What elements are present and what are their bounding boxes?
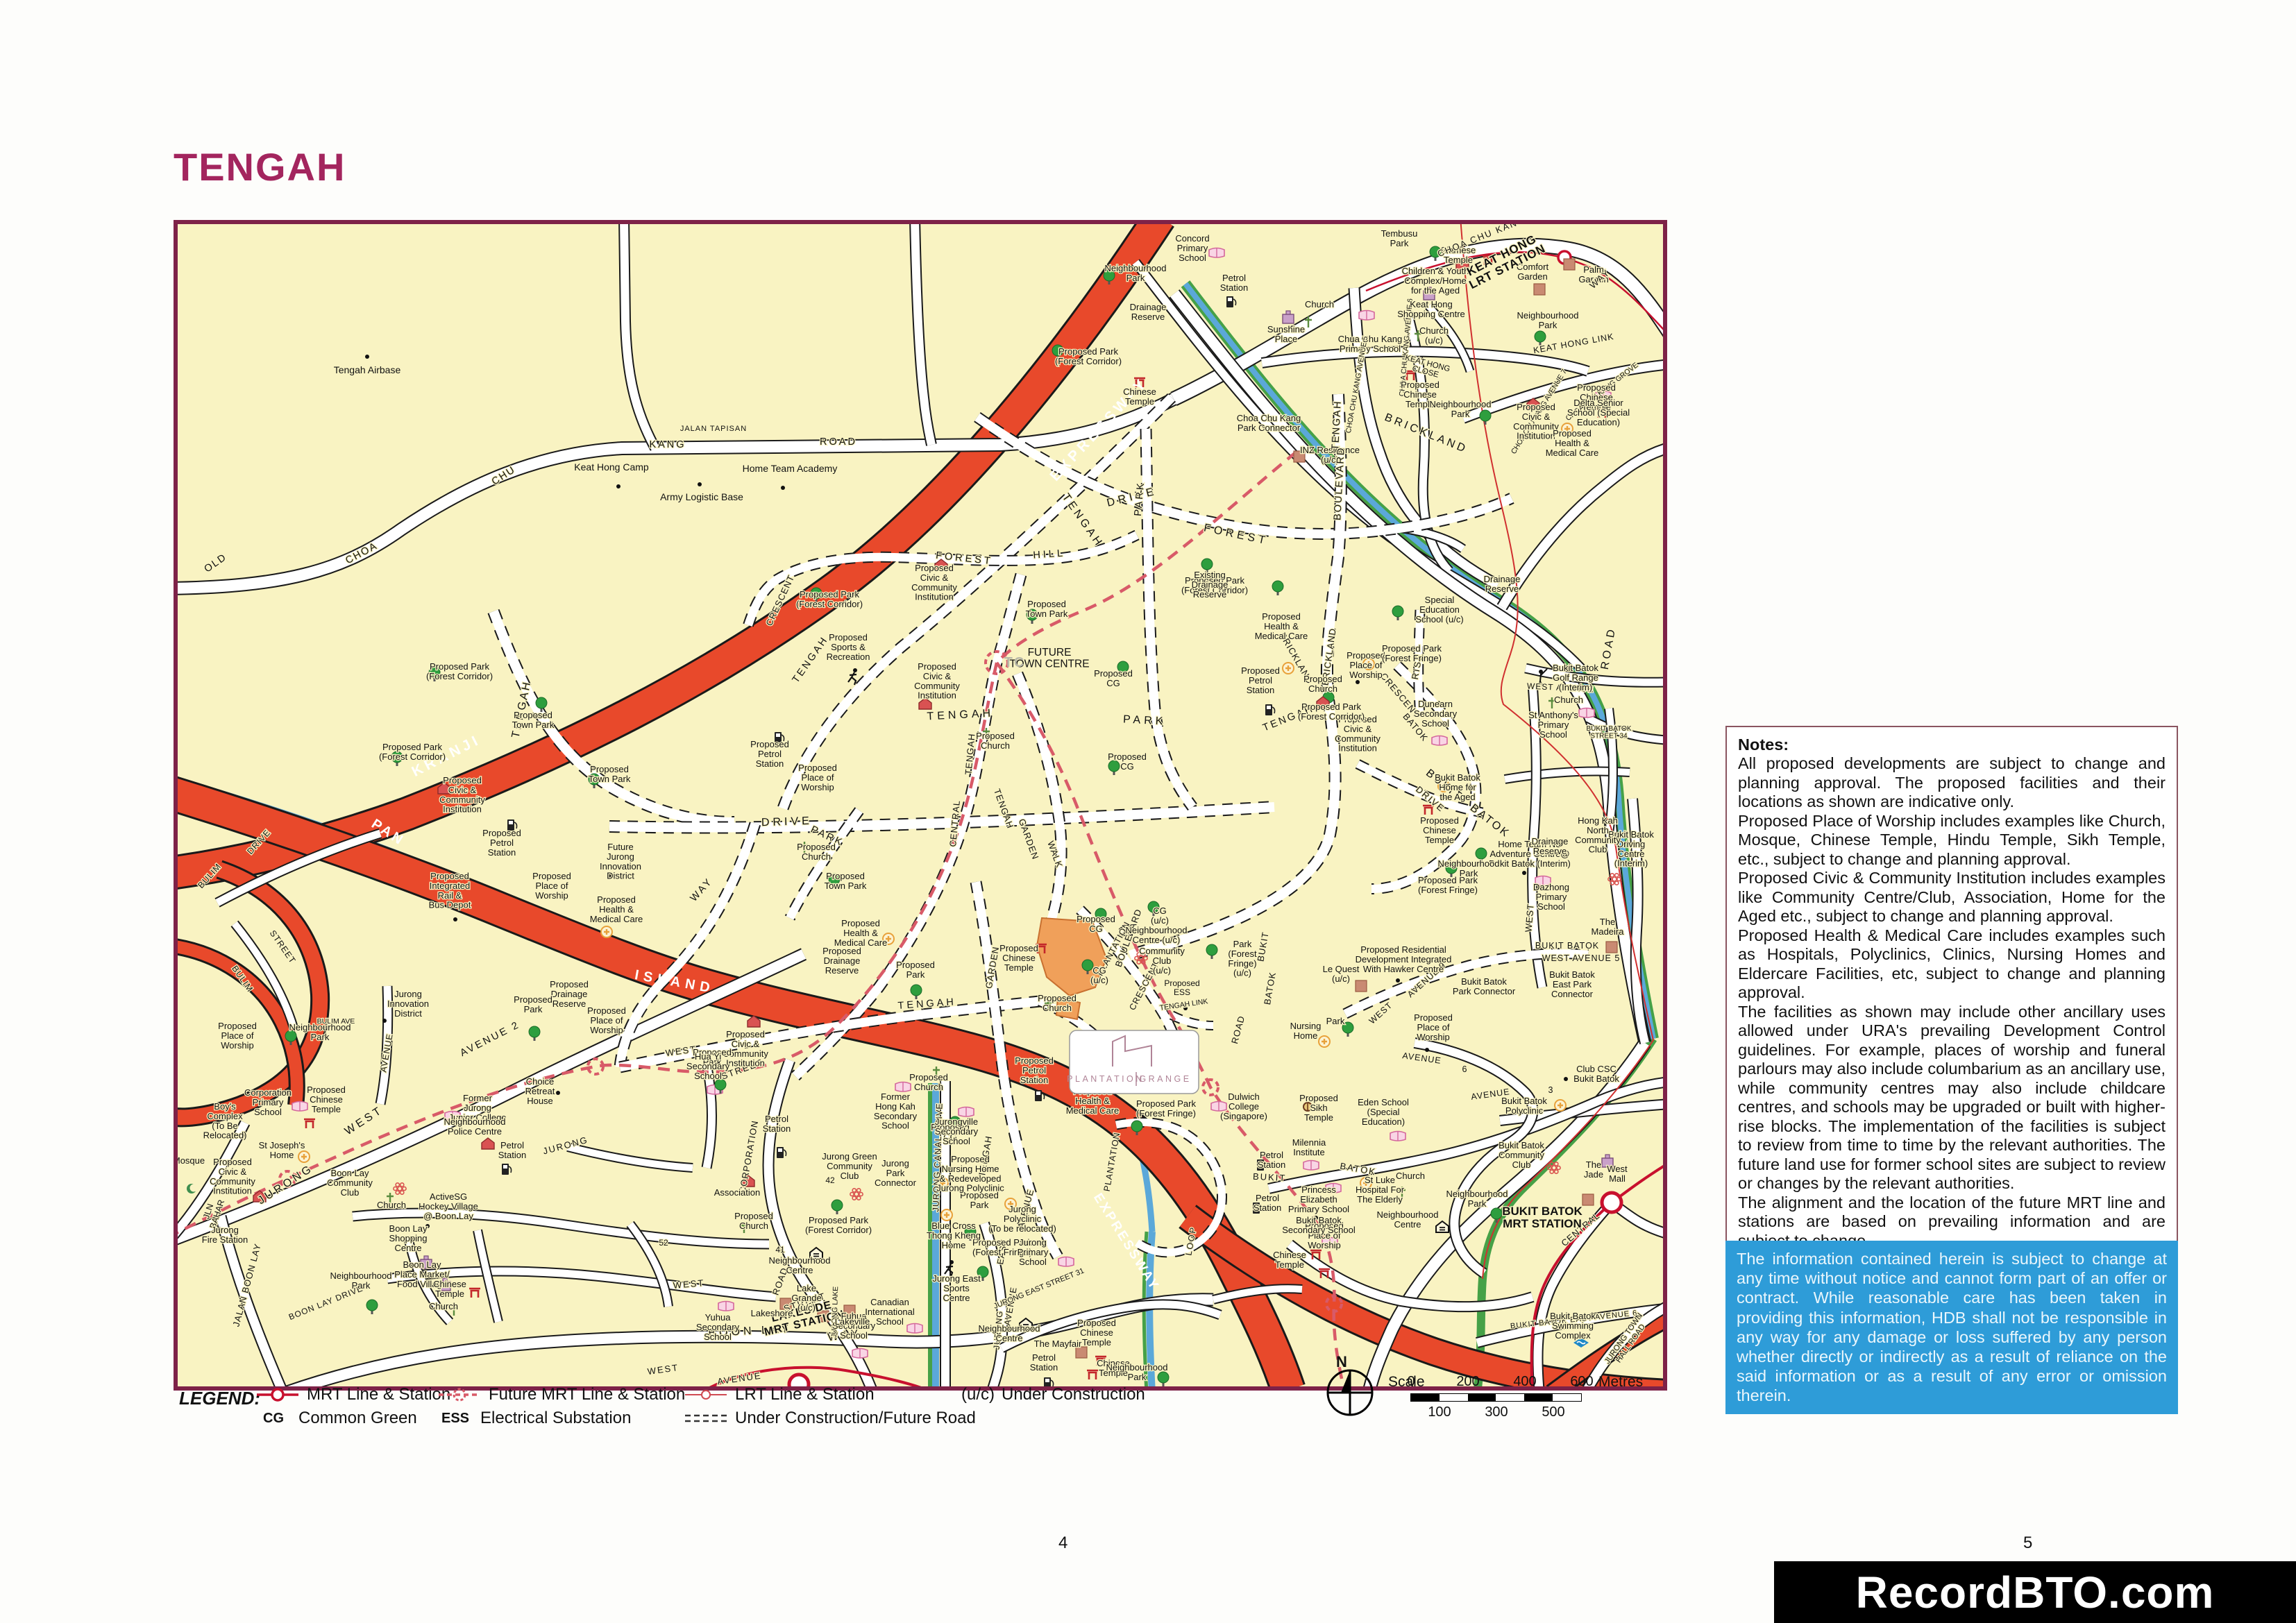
map-label: Lakeville [835, 1316, 870, 1327]
map-label: Church [1396, 1171, 1425, 1181]
scale-tick: 0 [1407, 1374, 1415, 1390]
page-number-right: 5 [2023, 1533, 2032, 1553]
legend-fmrt: Future MRT Line & Station [437, 1385, 685, 1404]
map-label: ProposedChurch [1303, 674, 1342, 694]
map-label: NursingHome [1290, 1021, 1322, 1041]
map-label: ProposedCivic &CommunityInstitution [439, 775, 485, 815]
map-label: ProposedChineseTemple [999, 943, 1038, 973]
map-label: Choa Chu KangPark Connector [1237, 413, 1301, 433]
map-label: Bukit BatokEast ParkConnector [1549, 969, 1595, 999]
tree-icon [366, 1300, 378, 1311]
map-label: ProposedDrainageReserve [822, 946, 861, 976]
map-label: Association [714, 1187, 760, 1198]
map-label: Proposed Park(Forest Corridor) [1298, 702, 1365, 722]
poi-dot [382, 1019, 387, 1023]
map-label: NeighbourhoodPolice Centre [444, 1116, 506, 1137]
map-label: BUKIT BATOKSTREET 34 [1586, 725, 1631, 740]
notes-paragraph: The facilities as shown may include othe… [1738, 1003, 2166, 1193]
scale-bar [1410, 1393, 1582, 1402]
legend-uc-label: Under Construction [1002, 1385, 1145, 1404]
map-label: TC [1004, 655, 1026, 670]
uc-symbol: (u/c) [961, 1385, 995, 1404]
scale-bar-area: N Scale 0 200 400 600 Metres 100 300 500 [1322, 1353, 1655, 1429]
plantation-grange-box [1070, 1030, 1199, 1094]
map-label: Church [429, 1301, 458, 1311]
legend-ucroad-label: Under Construction/Future Road [735, 1409, 976, 1428]
map-label: PARK [1123, 713, 1167, 727]
map-label: Church [1554, 695, 1583, 705]
page-title: TENGAH [174, 144, 346, 189]
legend-mrt: MRT Line & Station [255, 1385, 450, 1404]
petrol-station-icon [778, 1148, 782, 1152]
map-label: ProposedTown Park [512, 710, 555, 730]
map-label: WestMall [1607, 1164, 1628, 1184]
map-label: Proposed Park(Forest Corridor) [796, 589, 863, 609]
map-label: ConcordPrimarySchool [1175, 233, 1209, 263]
runner-icon [853, 668, 857, 672]
map-label: Bukit BatokSwimmingComplex [1550, 1311, 1596, 1341]
map-label: ProposedPlace ofWorship [218, 1021, 257, 1051]
tree-icon [832, 1200, 843, 1211]
notes-paragraph: Proposed Health & Medical Care includes … [1738, 926, 2166, 1003]
map-label: DrainageReserve [1484, 574, 1521, 594]
map-label: Army Logistic Base [660, 491, 743, 502]
map-label: Chua Chu KangPrimary School [1338, 334, 1403, 354]
map-label: PetrolStation [1258, 1150, 1285, 1170]
map-label: 6 [1462, 1064, 1467, 1074]
map-label: ProposedChineseTemple [1420, 815, 1459, 845]
map-label: ProposedChineseTemple [307, 1085, 346, 1114]
tree-icon [1272, 581, 1283, 592]
poi-dot [1522, 871, 1526, 875]
map-label: PetrolStation [1220, 273, 1248, 293]
cg-symbol: CG [255, 1411, 292, 1427]
map-label: DazhongPrimarySchool [1533, 882, 1569, 912]
poi-dot [698, 482, 702, 486]
page: { "page": {"title":"TENGAH","page_left":… [0, 0, 2296, 1623]
map-area: KRANJIEXPRESSWAYPANISLANDEXPRESSWAYOLDCH… [174, 220, 1667, 1391]
tree-icon [1158, 1372, 1169, 1383]
scale-tick: 500 [1542, 1404, 1564, 1420]
map-label: NeighbourhoodCentre (u/c) [1126, 925, 1188, 945]
building-icon [1564, 259, 1575, 270]
tree-icon [1480, 410, 1491, 421]
legend-ucroad: Under Construction/Future Road [684, 1409, 976, 1428]
tree-icon [1206, 944, 1217, 955]
map-canvas: KRANJIEXPRESSWAYPANISLANDEXPRESSWAYOLDCH… [178, 224, 1663, 1386]
map-label: CG(u/c) [1090, 965, 1108, 985]
map-label: 42 [825, 1175, 835, 1185]
disclaimer-box: The information contained herein is subj… [1725, 1241, 2178, 1414]
notes-heading: Notes: [1738, 736, 2166, 754]
map-label: ProposedChurch [797, 842, 836, 862]
map-label: ProposedPlace ofWorship [1347, 650, 1385, 680]
map-label: DrainageReserve [1532, 836, 1569, 856]
map-label: Church [377, 1200, 406, 1210]
map-label: ChineseTemple [1123, 386, 1156, 407]
map-label: ProposedChineseTemple [1077, 1318, 1116, 1348]
legend-ess-label: Electrical Substation [480, 1409, 631, 1428]
map-label: ProposedPlace ofWorship [587, 1005, 626, 1035]
tree-icon [1491, 1208, 1502, 1219]
building-icon [1582, 1194, 1594, 1205]
legend-lrt-label: LRT Line & Station [735, 1385, 875, 1404]
map-label: BUKIT BATOKMRT STATION [1502, 1205, 1582, 1230]
map-label: ProposedChurch [976, 731, 1015, 751]
scale-tick: 200 [1456, 1374, 1479, 1390]
tree-icon [1082, 960, 1093, 971]
mrt-station-marker [1602, 1193, 1621, 1212]
map-label: Lakeshore [751, 1308, 793, 1318]
petrol-station-icon [776, 733, 780, 737]
future-mrt-line-icon [437, 1386, 482, 1403]
map-label: BUKIT [1253, 1171, 1287, 1184]
scale-unit: Metres [1598, 1374, 1643, 1391]
map-label: ChineseTemple [1273, 1250, 1306, 1270]
tree-icon [529, 1026, 540, 1037]
tree-icon [1476, 848, 1487, 859]
map-label: Keat Hong Camp [574, 461, 649, 473]
map-label: ProposedSports &Recreation [827, 632, 870, 662]
poi-dot [616, 484, 621, 488]
map-label: ProposedTown Park [589, 764, 631, 784]
notes-body: All proposed developments are subject to… [1738, 754, 2166, 1307]
notes-paragraph: Proposed Place of Worship includes examp… [1738, 812, 2166, 869]
map-label: JurongPrimarySchool [1018, 1237, 1049, 1267]
map-label: ExistingDrainageReserve [1192, 570, 1229, 600]
building-icon [1606, 942, 1617, 953]
uc-road-icon [684, 1410, 728, 1427]
map-label: JALAN TAPISAN [680, 425, 747, 433]
petrol-station-icon [503, 1165, 507, 1169]
scale-tick: 300 [1485, 1404, 1508, 1420]
map-label: Proposed ResidentialDevelopment Integrat… [1356, 944, 1452, 974]
notes-paragraph: Proposed Civic & Community Institution i… [1738, 869, 2166, 926]
map-label: ChineseTemple [433, 1279, 466, 1299]
poi-dot [453, 917, 457, 921]
map-label: Home Team Academy [743, 463, 838, 474]
tree-icon [536, 697, 547, 708]
map-label: ProposedPlace ofWorship [1414, 1012, 1453, 1042]
map-label: 3 [1548, 1085, 1553, 1095]
petrol-station-icon [1045, 1379, 1049, 1382]
map-label: ProposedChurch [734, 1211, 773, 1231]
poi-dot [781, 486, 785, 490]
plantation-grange-text: PLANTATION [1067, 1074, 1145, 1084]
map-label: BUKIT BATOK [1535, 941, 1599, 951]
map-label: ProposedCivic &CommunityInstitution [210, 1157, 255, 1196]
map-label: 41 [775, 1245, 785, 1255]
building-icon [1534, 284, 1545, 295]
legend-ess: ESS Electrical Substation [437, 1409, 631, 1428]
shopping-building-icon [1605, 1155, 1610, 1158]
map-label: Club CSCBukit Batok [1573, 1064, 1619, 1084]
lrt-line-icon [684, 1386, 728, 1403]
petrol-station-icon [1267, 706, 1271, 709]
mosque-icon [190, 1184, 198, 1192]
legend-cg: CG Common Green [255, 1409, 417, 1428]
map-label: ProposedTown Park [1026, 599, 1068, 619]
building-icon [1356, 980, 1367, 992]
map-label: 52 [659, 1238, 668, 1248]
map-label: Proposed Park(Forest Corridor) [805, 1215, 872, 1235]
tree-icon [911, 985, 922, 996]
map-label: Bukit BatokPark Connector [1453, 976, 1516, 996]
legend-fmrt-label: Future MRT Line & Station [489, 1385, 685, 1404]
map-label: ProposedIntegratedRail &Bus Depot [429, 871, 471, 910]
map-label: Park [1326, 1016, 1345, 1026]
runner-icon [949, 1260, 954, 1264]
map-label: WEST AVENUE 5 [1542, 953, 1621, 963]
ess-symbol: ESS [437, 1411, 473, 1427]
map-label: ProposedChurch [909, 1072, 948, 1092]
poi-dot [365, 355, 369, 359]
tree-icon [1108, 760, 1120, 772]
map-label: DRIVE [761, 815, 813, 829]
poi-dot [556, 1091, 560, 1095]
legend-lrt: LRT Line & Station [684, 1385, 875, 1404]
petrol-station-icon [509, 821, 513, 824]
map-label: Bukit BatokPolyclinic [1501, 1096, 1547, 1116]
map-label: Tengah Airbase [334, 364, 401, 375]
map-label: ProposedPlace ofWorship [798, 763, 837, 792]
map-label: HILL [1033, 547, 1066, 561]
legend-uc: (u/c) Under Construction [961, 1385, 1145, 1404]
watermark: RecordBTO.com [1774, 1561, 2296, 1623]
scale-tick: 600 [1570, 1374, 1593, 1390]
tree-icon [1392, 606, 1403, 617]
mrt-line-icon [255, 1386, 300, 1403]
map-label: Proposed Park(Forest Corridor) [379, 742, 446, 762]
map-label: MilenniaInstitute [1292, 1137, 1326, 1157]
map-label: ProposedCivic &CommunityInstitution [914, 661, 960, 701]
map-label: Mosque [178, 1155, 205, 1166]
scale-tick: 100 [1428, 1404, 1451, 1420]
scale-tick: 400 [1513, 1374, 1536, 1390]
north-arrow-icon [1326, 1368, 1374, 1420]
plantation-grange-text: GRANGE [1139, 1074, 1191, 1084]
poi-dot [1425, 1048, 1429, 1052]
map-label: ProposedCivic &CommunityInstitution [911, 563, 957, 602]
map-label: PetrolStation [498, 1140, 526, 1160]
map-label: Proposed Park(Forest Corridor) [426, 661, 493, 681]
map-label: ProposedChurch [1038, 993, 1077, 1013]
scale-label: Scale [1388, 1374, 1425, 1391]
notes-paragraph: All proposed developments are subject to… [1738, 754, 2166, 811]
map-label: KANG [649, 439, 686, 450]
map-label: Church [1305, 299, 1334, 309]
map-label: Bukit BatokGolf Range(Interim) [1553, 663, 1598, 692]
shopping-building-icon [1283, 314, 1294, 323]
tree-icon [1201, 559, 1213, 570]
petrol-station-icon [1036, 1091, 1040, 1095]
tree-icon [1535, 331, 1546, 342]
map-label: DrainageReserve [1130, 302, 1167, 322]
map-label: TheJade [1584, 1159, 1603, 1180]
notes-panel: Notes: All proposed developments are sub… [1725, 726, 2178, 1319]
map-label: Bukit BatokHome forthe Aged [1435, 772, 1480, 802]
shopping-building-icon [1286, 311, 1290, 314]
page-number-left: 4 [1058, 1533, 1067, 1553]
map-label: PetrolStation [1253, 1193, 1281, 1213]
map-label: ProposedDrainageReserve [550, 979, 589, 1009]
map-label: PetrolStation [1030, 1352, 1058, 1373]
map-label: Proposed Park(Forest Corridor) [1055, 346, 1122, 366]
legend-cg-label: Common Green [298, 1409, 417, 1428]
legend-mrt-label: MRT Line & Station [307, 1385, 450, 1404]
map-label: ROAD [820, 436, 857, 448]
petrol-station-icon [1228, 298, 1232, 301]
tree-icon [1131, 1121, 1142, 1132]
poi-dot [1564, 1077, 1568, 1081]
map-label: ProposedTown Park [825, 871, 867, 891]
poi-dot [1396, 978, 1400, 983]
legend-title: LEGEND: [179, 1388, 260, 1409]
map-label: Proposed Park(Forest Fringe) [1382, 643, 1442, 663]
map-label: PetrolStation [763, 1114, 791, 1134]
map-label: ProposedPlace ofWorship [532, 871, 571, 901]
map-label: Children & YouthComplex/Homefor the Aged [1402, 266, 1469, 296]
map-label: ChoiceRetreatHouse [525, 1076, 555, 1106]
map-label: The Mayfair [1034, 1339, 1082, 1349]
poi-dot [1356, 680, 1360, 684]
map-label: Proposed Park(Forest Fringe) [1136, 1098, 1196, 1119]
map-label: CG(u/c) [1151, 906, 1169, 926]
